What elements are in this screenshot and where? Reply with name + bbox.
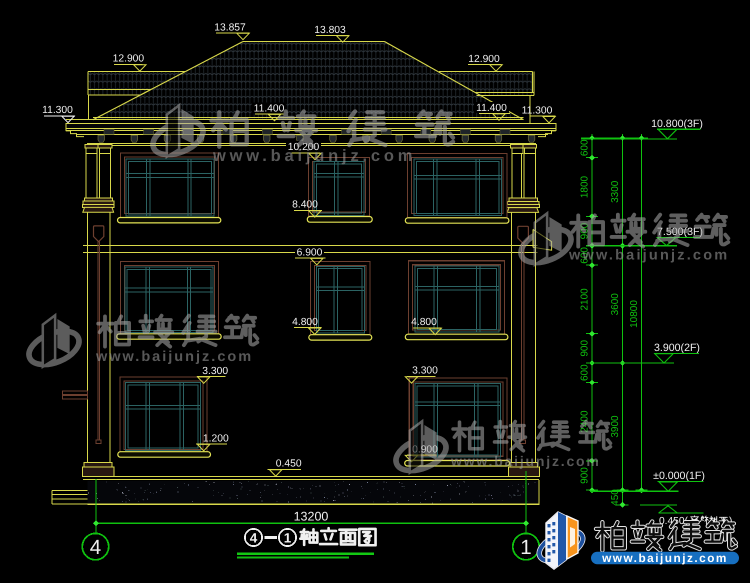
svg-text:1800: 1800: [580, 175, 591, 198]
svg-text:4.800: 4.800: [292, 317, 318, 328]
svg-text:www.baijunjz.com: www.baijunjz.com: [95, 349, 253, 365]
svg-text:www.baijunjz.com: www.baijunjz.com: [450, 453, 601, 469]
svg-text:2100: 2100: [580, 288, 591, 311]
svg-text:0.450: 0.450: [276, 459, 302, 470]
svg-text:11.300: 11.300: [522, 106, 553, 117]
svg-text:3600: 3600: [610, 293, 621, 316]
svg-text:1: 1: [284, 530, 292, 545]
svg-text:3.900(2F): 3.900(2F): [654, 342, 700, 354]
svg-text:www.baijunjz.com: www.baijunjz.com: [601, 551, 728, 565]
svg-text:±0.000(1F): ±0.000(1F): [653, 470, 705, 482]
svg-text:www.baijunjz.com: www.baijunjz.com: [212, 147, 416, 165]
svg-text:11.400: 11.400: [476, 103, 507, 114]
svg-text:600: 600: [580, 139, 591, 156]
svg-text:13.803: 13.803: [314, 25, 346, 36]
svg-text:3900: 3900: [610, 415, 621, 438]
svg-text:12.900: 12.900: [113, 54, 145, 65]
svg-text:13200: 13200: [294, 510, 329, 524]
svg-text:4.800: 4.800: [411, 317, 437, 328]
svg-text:900: 900: [580, 467, 591, 484]
svg-text:3.300: 3.300: [202, 366, 228, 377]
svg-text:10.800(3F): 10.800(3F): [651, 118, 703, 130]
svg-text:4: 4: [250, 530, 258, 545]
svg-text:www.baijunjz.com: www.baijunjz.com: [568, 248, 729, 264]
svg-text:11.400: 11.400: [254, 103, 285, 114]
svg-text:11.300: 11.300: [42, 105, 73, 116]
svg-text:13.857: 13.857: [214, 22, 246, 33]
svg-text:3300: 3300: [610, 180, 621, 203]
svg-text:8.400: 8.400: [292, 200, 318, 211]
svg-text:10800: 10800: [629, 300, 640, 328]
svg-text:600: 600: [580, 364, 591, 381]
svg-text:3.300: 3.300: [412, 366, 438, 377]
svg-text:6.900: 6.900: [297, 247, 323, 258]
svg-text:1: 1: [520, 536, 531, 559]
svg-text:4: 4: [90, 536, 101, 559]
svg-text:12.900: 12.900: [468, 54, 500, 65]
svg-text:1.200: 1.200: [203, 433, 229, 444]
svg-text:900: 900: [580, 340, 591, 357]
